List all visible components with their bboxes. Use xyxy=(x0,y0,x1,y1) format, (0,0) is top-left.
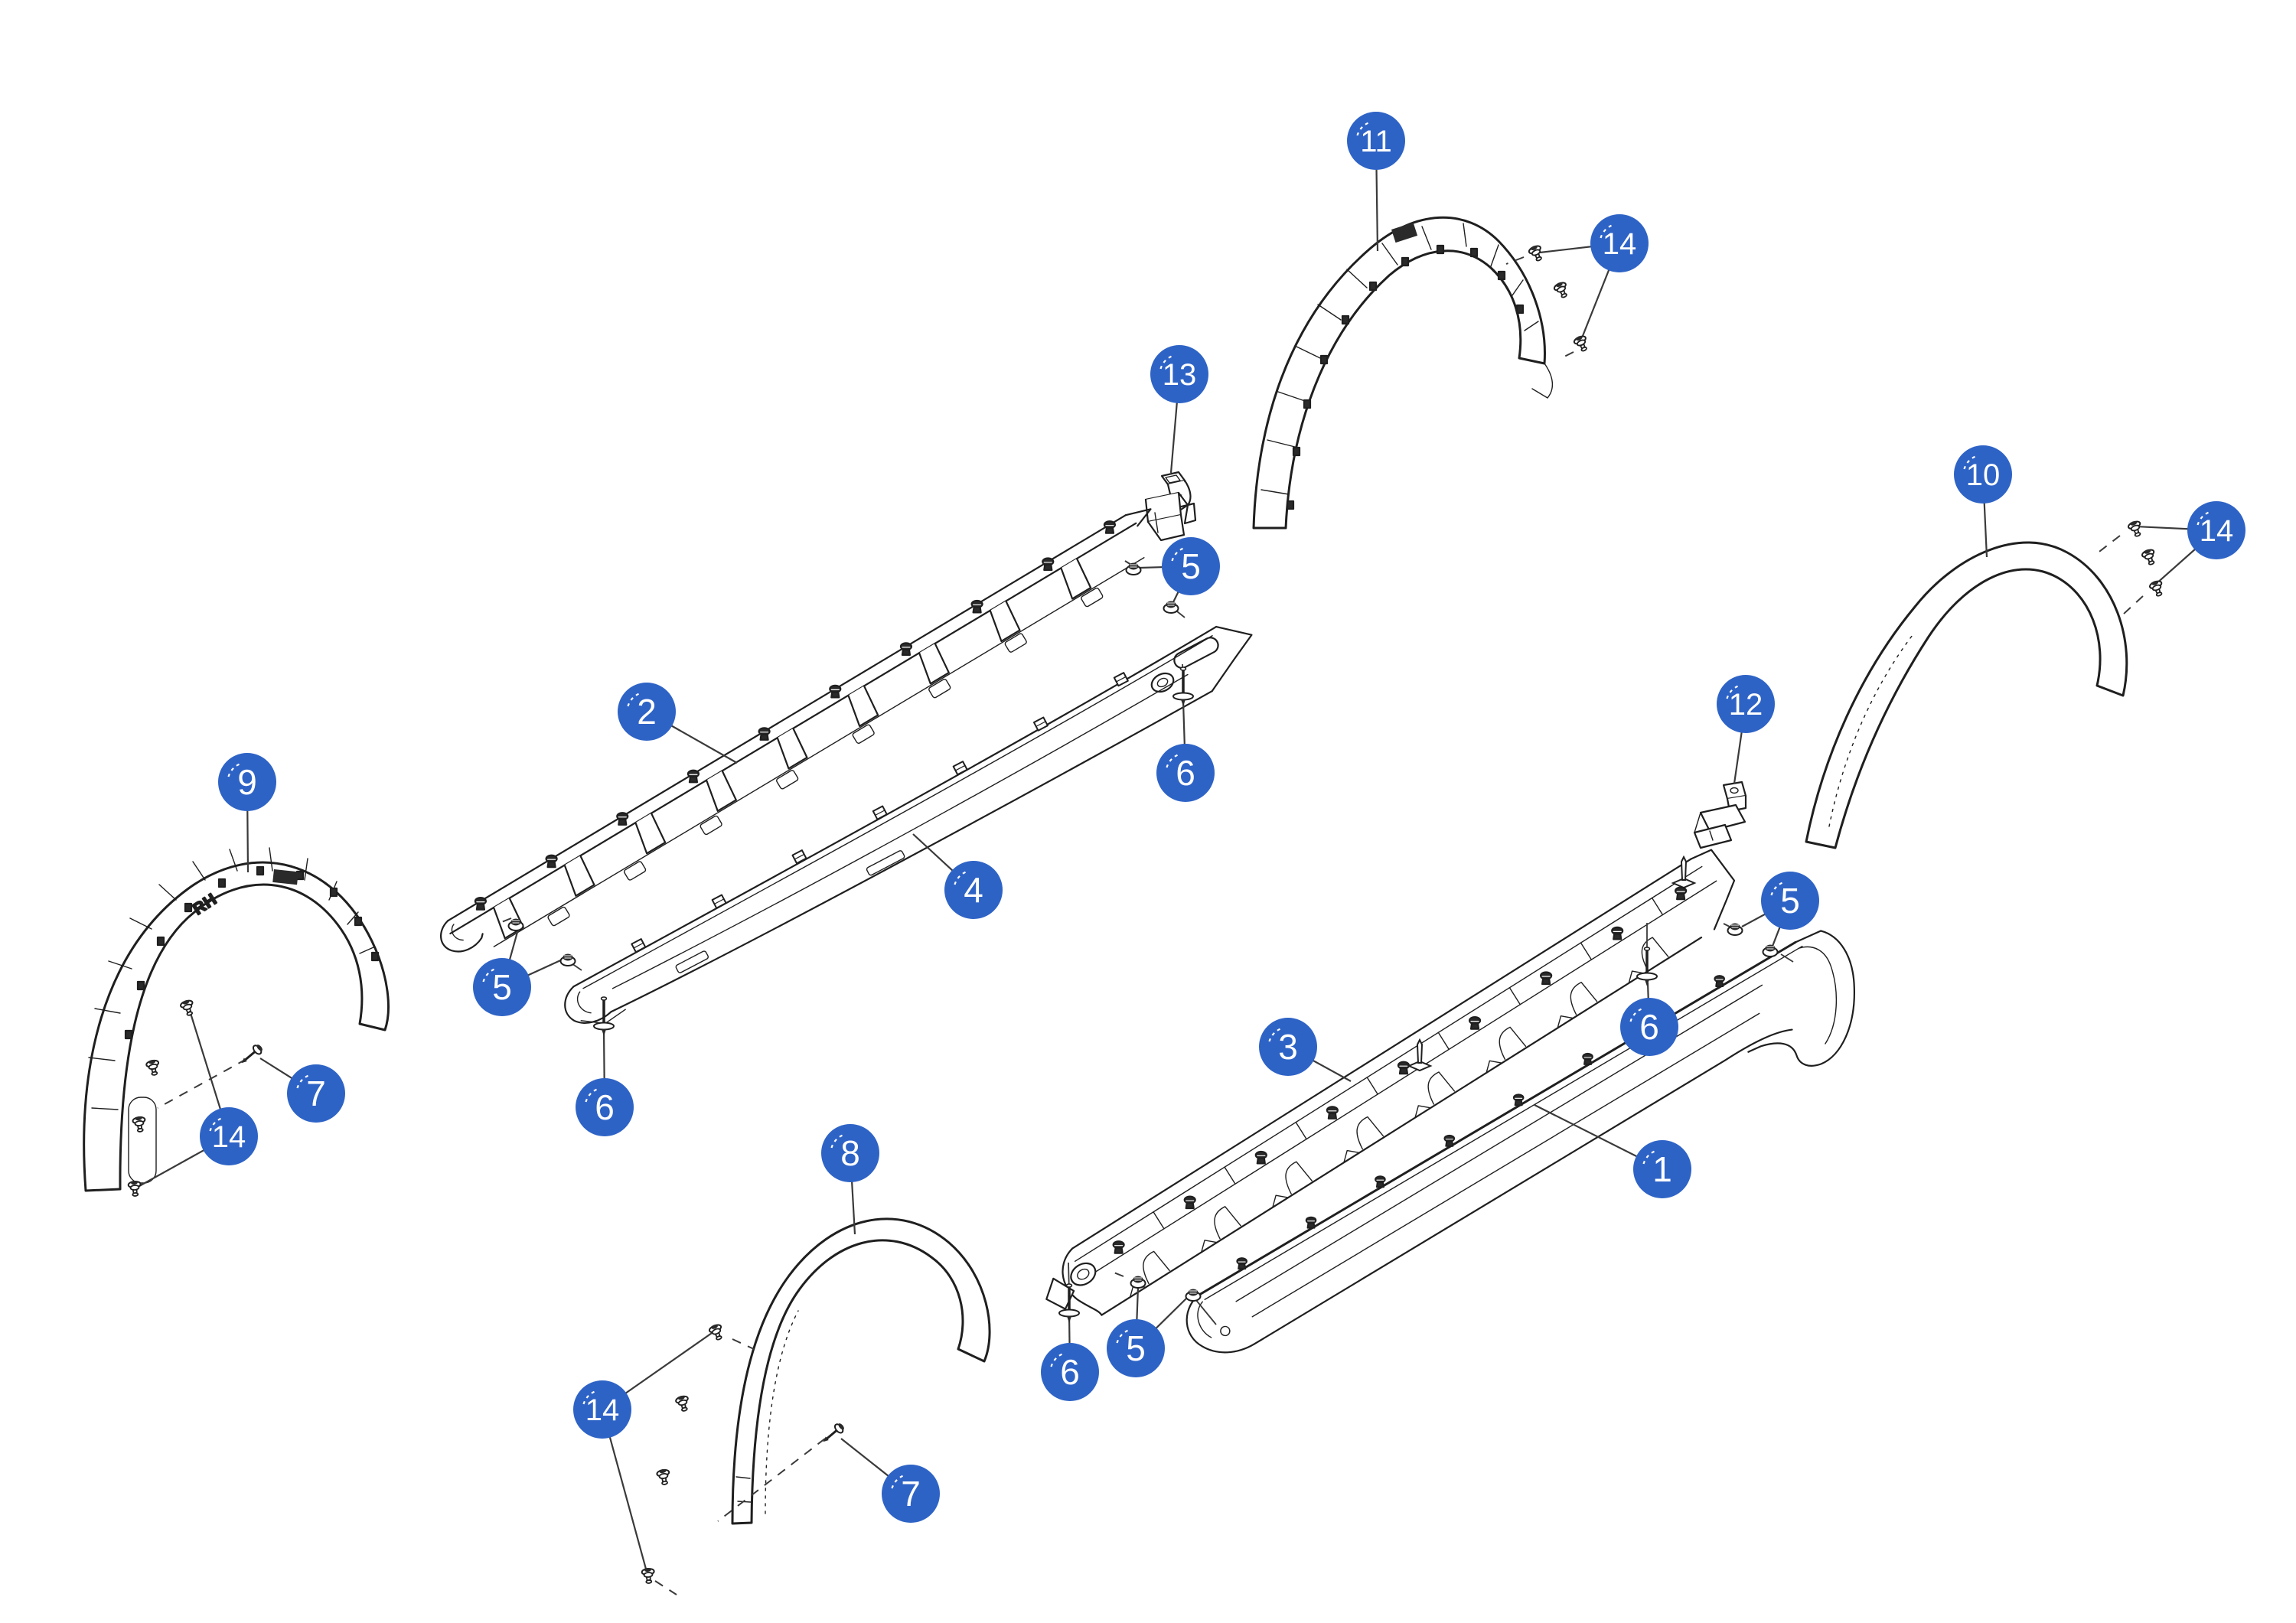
balloon-number: 14 xyxy=(585,1393,620,1427)
balloon-number: 5 xyxy=(1181,546,1201,586)
nut-fastener-5[interactable] xyxy=(1728,924,1743,936)
nut-fastener-5[interactable] xyxy=(561,954,576,966)
callout-balloon-6-11[interactable]: 6 xyxy=(1620,998,1678,1056)
fasteners-layer xyxy=(128,244,2165,1584)
callout-balloon-14-4[interactable]: 14 xyxy=(2187,501,2245,559)
callout-balloon-10-3[interactable]: 10 xyxy=(1954,445,2012,504)
balloon-number: 14 xyxy=(1603,227,1637,261)
balloon-number: 5 xyxy=(492,967,512,1007)
balloon-number: 5 xyxy=(1780,881,1800,921)
callout-balloon-11-0[interactable]: 11 xyxy=(1347,112,1405,170)
callout-balloon-14-17[interactable]: 14 xyxy=(200,1107,258,1165)
callout-balloon-3-14[interactable]: 3 xyxy=(1259,1018,1317,1076)
callout-balloon-5-5[interactable]: 5 xyxy=(1162,537,1220,595)
callout-balloon-5-13[interactable]: 5 xyxy=(473,958,531,1016)
callout-balloon-4-10[interactable]: 4 xyxy=(944,861,1003,919)
clip-fastener-14[interactable] xyxy=(1528,244,1545,263)
callout-balloon-12-7[interactable]: 12 xyxy=(1717,675,1775,733)
parts-diagram-canvas: RH xyxy=(0,0,2296,1623)
callout-balloon-7-16[interactable]: 7 xyxy=(287,1064,345,1123)
parts-lineart-layer: RH xyxy=(84,217,2127,1524)
balloon-number: 11 xyxy=(1360,125,1392,158)
part-12-bracket[interactable] xyxy=(1694,782,1746,848)
balloon-number: 8 xyxy=(840,1133,860,1173)
callout-balloon-7-21[interactable]: 7 xyxy=(882,1465,940,1523)
balloon-number: 14 xyxy=(212,1120,246,1154)
balloon-number: 6 xyxy=(1176,753,1195,793)
callout-balloon-8-18[interactable]: 8 xyxy=(821,1124,879,1182)
balloon-number: 7 xyxy=(901,1474,921,1514)
part-10-wheel-arch-trim[interactable] xyxy=(1806,543,2127,848)
balloon-number: 13 xyxy=(1163,358,1197,392)
balloon-number: 4 xyxy=(964,870,983,910)
callout-balloon-5-23[interactable]: 5 xyxy=(1107,1319,1165,1377)
balloon-number: 6 xyxy=(1060,1352,1080,1392)
dashed-guide-line xyxy=(2096,536,2120,554)
callout-balloon-1-19[interactable]: 1 xyxy=(1633,1140,1691,1198)
balloon-number: 6 xyxy=(595,1087,615,1127)
callout-balloon-6-9[interactable]: 6 xyxy=(1156,744,1215,802)
nut-fastener-5[interactable] xyxy=(1186,1289,1201,1302)
nut-fastener-5[interactable] xyxy=(1164,601,1179,614)
callout-balloon-6-15[interactable]: 6 xyxy=(576,1078,634,1136)
clip-fastener-14[interactable] xyxy=(657,1468,671,1485)
parts-diagram-page: RH xyxy=(0,0,2296,1623)
clip-fastener-14[interactable] xyxy=(2148,579,2165,598)
balloon-number: 10 xyxy=(1966,458,2001,492)
dashed-guide-line xyxy=(1561,352,1574,358)
screw-fastener-7[interactable] xyxy=(238,1043,264,1067)
balloon-number: 7 xyxy=(306,1074,326,1113)
clip-fastener-14[interactable] xyxy=(708,1323,725,1342)
clip-fastener-14[interactable] xyxy=(2141,548,2157,566)
dashed-guide-line xyxy=(2123,596,2143,614)
dashed-guide-line xyxy=(732,1339,754,1349)
fastener-axis-line xyxy=(1177,611,1185,618)
part-13-bracket[interactable] xyxy=(1146,472,1195,540)
clip-fastener-14[interactable] xyxy=(641,1567,655,1583)
screw-fastener-7[interactable] xyxy=(820,1422,846,1445)
clip-fastener-14[interactable] xyxy=(675,1394,691,1412)
balloon-number: 3 xyxy=(1278,1027,1298,1067)
clip-fastener-14[interactable] xyxy=(2127,520,2144,538)
callout-balloon-2-6[interactable]: 2 xyxy=(618,683,676,741)
balloon-number: 2 xyxy=(637,692,657,732)
callout-balloon-9-8[interactable]: 9 xyxy=(218,753,276,811)
callout-balloon-14-20[interactable]: 14 xyxy=(573,1380,631,1439)
clip-fastener-14[interactable] xyxy=(1553,281,1570,300)
callout-balloon-5-12[interactable]: 5 xyxy=(1761,872,1819,930)
nut-fastener-5[interactable] xyxy=(1127,563,1141,575)
dashed-guide-line xyxy=(158,1059,246,1108)
clip-fastener-14[interactable] xyxy=(128,1180,142,1196)
hidden-attachment-dashed-lines xyxy=(158,257,2143,1595)
clip-fastener-14[interactable] xyxy=(1573,334,1590,354)
callout-balloon-6-22[interactable]: 6 xyxy=(1041,1343,1099,1401)
clip-fastener-14[interactable] xyxy=(145,1059,161,1077)
callout-balloon-14-1[interactable]: 14 xyxy=(1590,214,1649,272)
balloon-number: 9 xyxy=(237,762,257,802)
balloon-number: 12 xyxy=(1729,688,1763,722)
clip-fastener-14[interactable] xyxy=(180,999,196,1017)
balloon-number: 6 xyxy=(1639,1007,1659,1047)
balloon-number: 5 xyxy=(1126,1328,1146,1368)
balloon-number: 14 xyxy=(2200,514,2234,548)
part-8-wheel-arch-trim[interactable] xyxy=(732,1219,990,1524)
nut-fastener-5[interactable] xyxy=(1763,945,1778,957)
balloon-number: 1 xyxy=(1652,1149,1672,1189)
callout-balloon-13-2[interactable]: 13 xyxy=(1150,345,1208,403)
dashed-guide-line xyxy=(655,1581,677,1595)
clip-fastener-14[interactable] xyxy=(132,1116,147,1133)
